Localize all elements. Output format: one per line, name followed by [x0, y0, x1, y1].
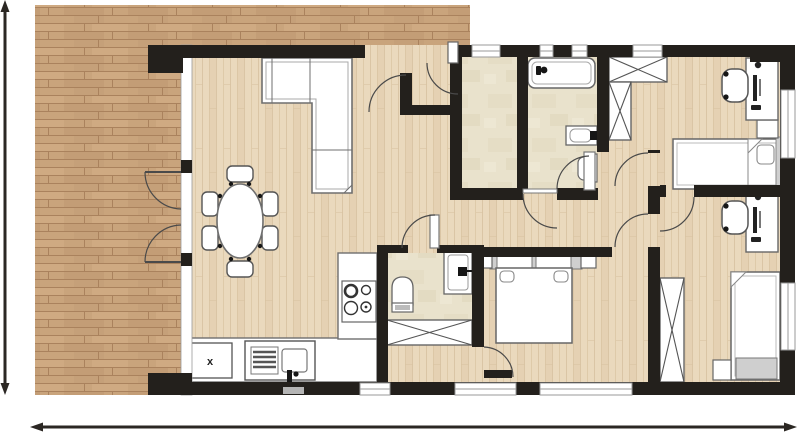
wall-bedrooms-left	[648, 247, 660, 382]
window	[633, 45, 662, 57]
window	[572, 45, 587, 57]
pillow	[757, 145, 774, 164]
window	[540, 45, 553, 57]
kitchen-cabinet-label: x	[207, 356, 214, 368]
glazed-wall	[181, 45, 192, 395]
wall-corner	[148, 373, 183, 395]
wardrobe-x	[660, 278, 684, 382]
window	[455, 383, 516, 395]
wall-kitchen-right	[377, 245, 388, 382]
mullion	[181, 160, 192, 173]
nightstand	[757, 120, 778, 138]
single-bed	[731, 272, 780, 380]
wall-bedrooms-left	[648, 186, 660, 214]
wardrobe-x	[387, 320, 472, 345]
wall-master-top	[484, 247, 612, 257]
window	[360, 383, 390, 395]
window	[781, 90, 795, 158]
wall-bath-right	[597, 57, 609, 152]
floor-plan: x	[0, 0, 800, 433]
desk	[746, 58, 778, 120]
nightstand	[713, 360, 731, 380]
monitor-icon	[753, 207, 757, 233]
kitchen-sink	[245, 341, 315, 382]
tub-faucet-icon	[536, 66, 541, 75]
mullion	[181, 253, 192, 266]
wall-wc-top-b	[437, 245, 484, 253]
kitchen-window	[283, 387, 304, 394]
window	[781, 283, 795, 350]
dining-table	[217, 184, 263, 258]
faucet-icon	[287, 370, 292, 382]
pillow	[554, 271, 568, 282]
wall-bedroom-divider	[694, 185, 780, 197]
window	[472, 45, 500, 57]
deck-top	[192, 5, 470, 45]
shower-room-floor	[462, 57, 517, 190]
desk	[746, 190, 778, 252]
wall-shower-left	[450, 57, 462, 190]
wardrobe-x	[609, 57, 667, 82]
wall-master-left	[472, 320, 484, 347]
desk-chair	[722, 201, 748, 234]
wall-bedrooms-left	[648, 150, 660, 153]
wc-toilet	[392, 277, 413, 312]
bathroom-washbasin	[566, 126, 597, 145]
base-cabinet-x: x	[188, 343, 232, 378]
wall-corner	[148, 45, 183, 73]
wall-wc-right	[472, 253, 484, 320]
wardrobe-x	[609, 82, 631, 140]
desk-chair	[722, 69, 748, 102]
footboard	[736, 358, 777, 379]
floor-plan-canvas: x	[0, 0, 800, 433]
basin-faucet-icon	[590, 131, 597, 140]
wall-hall-top-a	[450, 188, 523, 200]
window	[540, 383, 632, 395]
desk-lamp-icon	[755, 62, 761, 68]
single-bed	[673, 137, 781, 190]
wc-faucet-icon	[458, 267, 467, 276]
wc-washbasin	[444, 251, 472, 294]
bathtub	[528, 58, 595, 88]
monitor-icon	[753, 75, 757, 101]
pillow	[500, 271, 514, 282]
wall-shower-bath	[517, 57, 528, 190]
wall-bedroom-divider	[660, 185, 666, 197]
cooktop	[342, 281, 376, 322]
